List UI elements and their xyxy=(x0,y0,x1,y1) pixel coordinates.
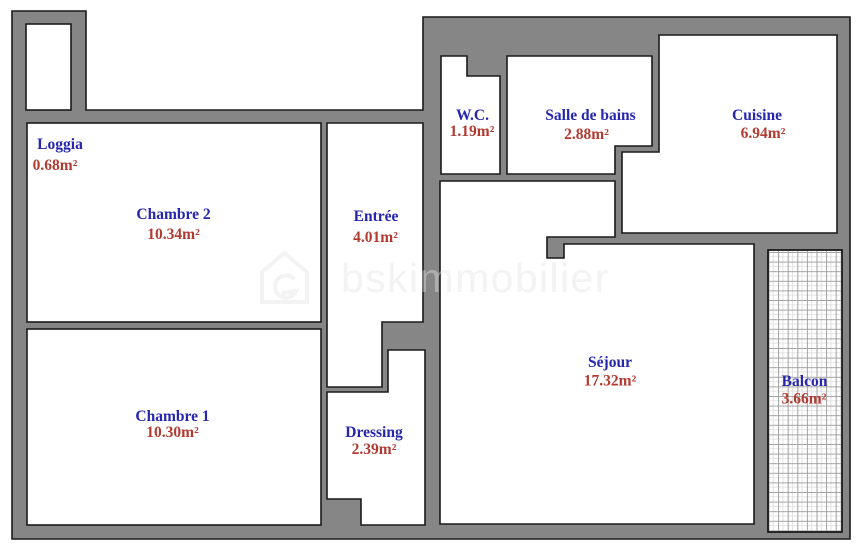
svg-text:bskimmobilier: bskimmobilier xyxy=(341,255,610,301)
